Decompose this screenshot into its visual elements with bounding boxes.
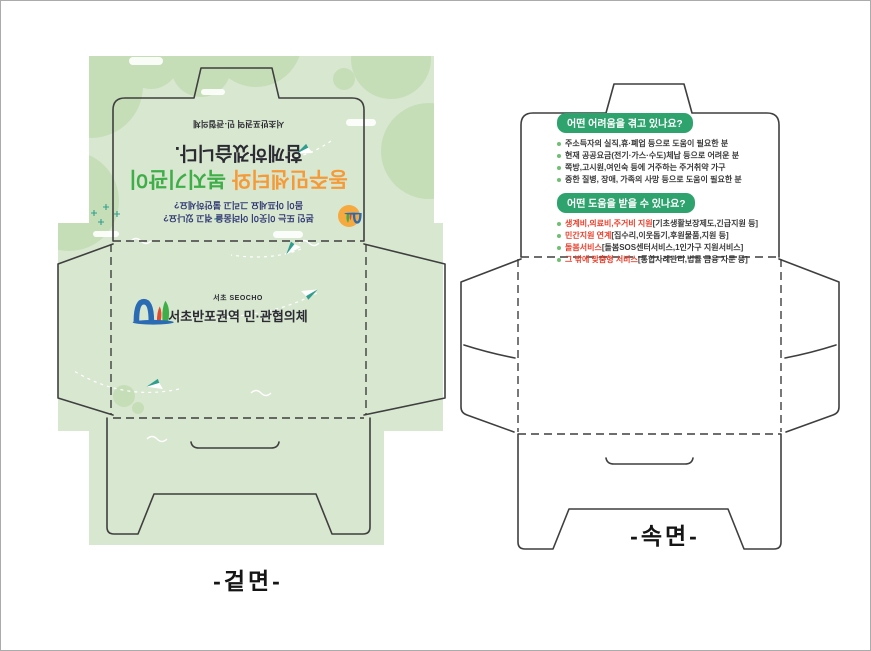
flap-question-2: 몸이 아프세요 그리고 불안하세요? — [174, 198, 303, 211]
inner-flap-info: 어떤 어려움을 겪고 있나요? 주소득자의 실직,휴·폐업 등으로 도움이 필요… — [557, 113, 795, 268]
bullet-dot-icon — [557, 154, 561, 158]
outer-flap-message: 본인 또는 이웃이 어려움을 겪고 있나요? 몸이 아프세요 그리고 불안하세요… — [113, 94, 364, 226]
list-item-text: 주소득자의 실직,휴·폐업 등으로 도움이 필요한 분 — [565, 138, 728, 150]
flap-title-green: 복지기관이 — [129, 167, 226, 190]
list-item: 현재 공공요금(전기·가스·수도)체납 등으로 어려운 분 — [557, 150, 795, 162]
bullet-dot-icon — [557, 142, 561, 146]
difficulties-badge: 어떤 어려움을 겪고 있나요? — [557, 113, 693, 133]
outer-body-logo-block: 서초 SEOCHO 서초반포권역 민·관협의체 — [128, 292, 348, 325]
inner-side-label: -속면- — [580, 517, 750, 551]
bullet-dot-icon — [557, 258, 561, 262]
bullet-dot-icon — [557, 222, 561, 226]
list-item-text: 현재 공공요금(전기·가스·수도)체납 등으로 어려운 분 — [565, 150, 739, 162]
outer-envelope-print — [19, 1, 477, 545]
list-item-text: 생계비,의료비,주거비 지원[기초생활보장제도,긴급지원 등] — [565, 218, 758, 230]
seocho-logo-icon-small — [340, 210, 364, 226]
help-badge: 어떤 도움을 받을 수 있나요? — [557, 193, 695, 213]
list-item: 중한 질병, 장애, 가족의 사망 등으로 도움이 필요한 분 — [557, 174, 795, 186]
seocho-logo-icon — [128, 292, 184, 332]
list-item: 민간지원 연계[집수리,이웃돕기,후원물품,지원 등] — [557, 230, 795, 242]
list-item-text: 민간지원 연계[집수리,이웃돕기,후원물품,지원 등] — [565, 230, 729, 242]
list-item: 그 밖에 맞춤형 서비스[통합사례관리,법률 금융 자문 등] — [557, 254, 795, 266]
flap-org-header-row: 서초반포권역 민·관협의체 — [193, 118, 284, 130]
flap-title-line2: 함께하겠습니다. — [175, 140, 303, 164]
list-item: 주소득자의 실직,휴·폐업 등으로 도움이 필요한 분 — [557, 138, 795, 150]
list-item: 생계비,의료비,주거비 지원[기초생활보장제도,긴급지원 등] — [557, 218, 795, 230]
bullet-dot-icon — [557, 178, 561, 182]
envelope-template-sheet: 본인 또는 이웃이 어려움을 겪고 있나요? 몸이 아프세요 그리고 불안하세요… — [0, 0, 871, 651]
difficulties-list: 주소득자의 실직,휴·폐업 등으로 도움이 필요한 분 현재 공공요금(전기·가… — [557, 138, 795, 186]
bullet-dot-icon — [557, 234, 561, 238]
list-item-text: 중한 질병, 장애, 가족의 사망 등으로 도움이 필요한 분 — [565, 174, 742, 186]
flap-org-header-text: 서초반포권역 민·관협의체 — [193, 118, 284, 130]
list-item: 쪽방,고시원,여인숙 등에 거주하는 주거취약 가구 — [557, 162, 795, 174]
help-list: 생계비,의료비,주거비 지원[기초생활보장제도,긴급지원 등] 민간지원 연계[… — [557, 218, 795, 266]
list-item-text: 쪽방,고시원,여인숙 등에 거주하는 주거취약 가구 — [565, 162, 726, 174]
flap-question-1: 본인 또는 이웃이 어려움을 겪고 있나요? — [163, 211, 313, 224]
outer-side-label: -겉면- — [163, 562, 333, 596]
inner-dieline-folds — [518, 257, 781, 434]
list-item-text: 돌봄서비스[돌봄SOS센터서비스,1인가구 지원서비스] — [565, 242, 743, 254]
list-item: 돌봄서비스[돌봄SOS센터서비스,1인가구 지원서비스] — [557, 242, 795, 254]
bullet-dot-icon — [557, 246, 561, 250]
bullet-dot-icon — [557, 166, 561, 170]
list-item-text: 그 밖에 맞춤형 서비스[통합사례관리,법률 금융 자문 등] — [565, 254, 748, 266]
flap-title-line1: 동주민센터와 복지기관이 — [129, 165, 347, 192]
flap-title-orange: 동주민센터와 — [232, 167, 348, 190]
